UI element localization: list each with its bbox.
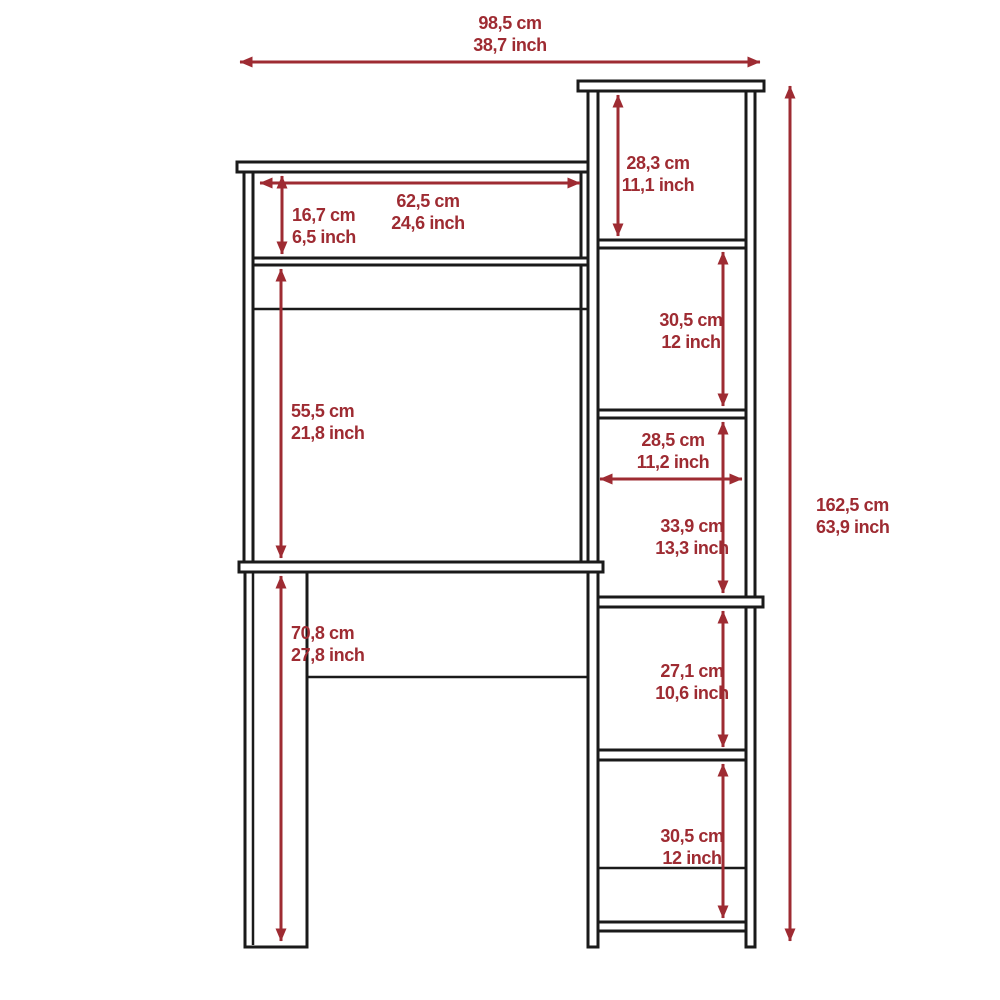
desk-right-side-panel: [581, 172, 588, 562]
dim-label-bookcase-cubby-1: 28,3 cm 11,1 inch: [622, 152, 694, 196]
dim-inch-value: 38,7 inch: [473, 34, 546, 56]
bookcase-bottom-shelf: [598, 922, 746, 931]
dim-cm-value: 28,5 cm: [637, 429, 709, 451]
hutch-shelf: [253, 258, 588, 265]
bookcase-shelf-2: [598, 410, 746, 418]
dim-label-bookcase-cubby-5: 30,5 cm 12 inch: [660, 825, 723, 869]
dim-cm-value: 55,5 cm: [291, 400, 364, 422]
dim-inch-value: 11,2 inch: [637, 451, 709, 473]
dim-inch-value: 63,9 inch: [816, 516, 889, 538]
dim-label-desk-total-height: 70,8 cm 27,8 inch: [291, 622, 364, 666]
dim-cm-value: 70,8 cm: [291, 622, 364, 644]
dim-cm-value: 33,9 cm: [655, 515, 728, 537]
dim-inch-value: 10,6 inch: [655, 682, 728, 704]
dim-cm-value: 62,5 cm: [391, 190, 464, 212]
diagram-canvas: 98,5 cm 38,7 inch 62,5 cm 24,6 inch 16,7…: [0, 0, 1000, 1000]
dim-label-bookcase-cubby-2: 30,5 cm 12 inch: [659, 309, 722, 353]
dim-cm-value: 27,1 cm: [655, 660, 728, 682]
bookcase-top-board: [578, 81, 764, 91]
dim-cm-value: 16,7 cm: [292, 204, 356, 226]
dim-inch-value: 24,6 inch: [391, 212, 464, 234]
hutch-top-board: [237, 162, 588, 172]
dim-cm-value: 162,5 cm: [816, 494, 889, 516]
dim-inch-value: 12 inch: [660, 847, 723, 869]
dim-inch-value: 13,3 inch: [655, 537, 728, 559]
dim-cm-value: 30,5 cm: [659, 309, 722, 331]
dim-label-hutch-shelf-height: 16,7 cm 6,5 inch: [292, 204, 356, 248]
dim-inch-value: 12 inch: [659, 331, 722, 353]
dim-cm-value: 30,5 cm: [660, 825, 723, 847]
bookcase-right-panel: [746, 91, 755, 947]
dim-cm-value: 98,5 cm: [473, 12, 546, 34]
dim-label-overall-height: 162,5 cm 63,9 inch: [816, 494, 889, 538]
desk-top: [239, 562, 603, 572]
dim-label-hutch-shelf-width: 62,5 cm 24,6 inch: [391, 190, 464, 234]
bookcase-shelf-1: [598, 240, 746, 248]
bookcase-shelf-3: [598, 750, 746, 760]
dim-label-overall-width: 98,5 cm 38,7 inch: [473, 12, 546, 56]
dim-inch-value: 6,5 inch: [292, 226, 356, 248]
bookcase-mid-shelf-protruding: [598, 597, 763, 607]
dim-cm-value: 28,3 cm: [622, 152, 694, 174]
dim-label-bookcase-cubby-4: 27,1 cm 10,6 inch: [655, 660, 728, 704]
dim-inch-value: 27,8 inch: [291, 644, 364, 666]
dim-label-desk-clearance: 55,5 cm 21,8 inch: [291, 400, 364, 444]
dim-inch-value: 21,8 inch: [291, 422, 364, 444]
desk-left-side-panel: [244, 172, 253, 562]
dim-label-bookcase-inner-width: 28,5 cm 11,2 inch: [637, 429, 709, 473]
dim-inch-value: 11,1 inch: [622, 174, 694, 196]
dimension-arrows: [240, 62, 790, 941]
dim-label-bookcase-cubby-3: 33,9 cm 13,3 inch: [655, 515, 728, 559]
